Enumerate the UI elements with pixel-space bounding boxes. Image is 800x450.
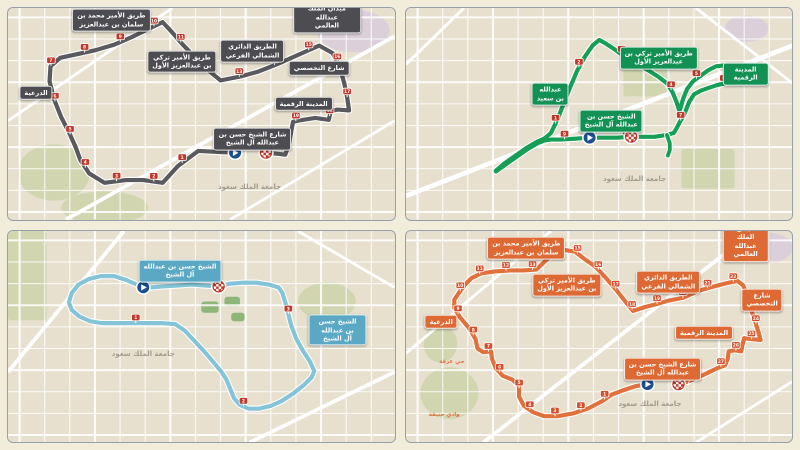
road-label-badge: طريق الأمير محمد بن سلمان بن عبدالعزيز <box>487 237 565 260</box>
road-label-badge: المدينة الرقمية <box>675 326 733 340</box>
route-map-panel-orange: 1234567891011121314151617181920212223242… <box>405 230 794 444</box>
svg-text:4: 4 <box>84 160 87 166</box>
park-area <box>8 231 47 320</box>
road-label-badge: شارع التخصصي <box>741 289 782 312</box>
svg-text:4: 4 <box>528 402 531 408</box>
svg-text:1: 1 <box>603 391 606 397</box>
svg-text:2: 2 <box>577 60 580 66</box>
map-canvas: 1234567891011121314151617181920212223242… <box>406 231 793 443</box>
svg-text:5: 5 <box>694 71 697 77</box>
district-label: حي عرقة <box>439 359 465 365</box>
district-label: وادي حنيفة <box>429 412 460 418</box>
road-label-badge: شارع الشيخ حسن بن عبدالله آل الشيخ <box>624 357 702 380</box>
svg-text:8: 8 <box>471 327 474 333</box>
svg-text:16: 16 <box>595 261 601 267</box>
road-label-badge: طريق الأمير تركي بن عبدالعزيز الأول <box>620 46 698 69</box>
road-label-badge: ميدان الملك عبدالله العالمي <box>722 230 768 262</box>
svg-text:2: 2 <box>579 402 582 408</box>
svg-text:9: 9 <box>456 306 459 312</box>
purple-area <box>724 16 767 42</box>
svg-text:9: 9 <box>562 131 565 137</box>
svg-text:27: 27 <box>717 358 723 364</box>
svg-text:3: 3 <box>553 408 556 414</box>
route-map-panel-dark: 12345678910111213141516171819طريق الأمير… <box>7 7 396 221</box>
route-map-panel-green: 123456789طريق الأمير تركي بن عبدالعزيز ا… <box>405 7 794 221</box>
svg-text:7: 7 <box>486 343 489 349</box>
road-label-badge: شارع الشيخ حسن بن عبدالله آل الشيخ <box>214 127 292 150</box>
road-label-badge: الشيخ حسن بن عبدالله آل الشيخ <box>580 109 643 132</box>
svg-text:10: 10 <box>151 18 157 24</box>
svg-text:12: 12 <box>502 262 508 268</box>
svg-text:7: 7 <box>49 58 52 64</box>
road-label-badge: المدينة الرقمية <box>722 62 768 85</box>
road-label-badge: عبدالله بن سعيد <box>532 83 569 106</box>
svg-text:19: 19 <box>293 113 299 119</box>
road-label-badge: شارع التخصصي <box>289 61 350 75</box>
park-area <box>420 367 478 419</box>
start-marker <box>582 131 596 144</box>
park-area <box>423 325 457 363</box>
svg-text:18: 18 <box>629 301 635 307</box>
svg-text:15: 15 <box>306 42 312 48</box>
svg-text:6: 6 <box>498 364 501 370</box>
field-area <box>231 312 245 320</box>
field-area <box>201 301 218 312</box>
svg-text:17: 17 <box>344 89 350 95</box>
road-label-badge: الدرعية <box>19 85 52 99</box>
svg-text:2: 2 <box>242 398 245 404</box>
map-place-label: جامعة الملك سعود <box>112 350 175 358</box>
route-maps-grid: 12345678910111213141516171819طريق الأمير… <box>0 0 800 450</box>
svg-text:5: 5 <box>517 380 520 386</box>
svg-text:6: 6 <box>53 93 56 99</box>
svg-text:11: 11 <box>178 35 184 41</box>
road-label-badge: ميدان الملك عبدالله العالمي <box>293 7 361 33</box>
svg-text:21: 21 <box>704 280 710 286</box>
map-place-label: جامعة الملك سعود <box>218 183 281 191</box>
svg-text:1: 1 <box>554 116 557 122</box>
route-map-panel-cyan: 123الشيخ حسن بن عبدالله آل الشيخالشيخ حس… <box>7 230 396 444</box>
map-place-label: جامعة الملك سعود <box>618 400 681 408</box>
svg-text:24: 24 <box>752 315 758 321</box>
road-label-badge: الطريق الدائري الشمالي الفرعي <box>221 40 285 63</box>
svg-text:1: 1 <box>134 315 137 321</box>
svg-text:15: 15 <box>574 245 580 251</box>
svg-text:26: 26 <box>732 342 738 348</box>
road-label-badge: المدينة الرقمية <box>275 97 333 111</box>
svg-text:25: 25 <box>748 331 754 337</box>
road-label-badge: الشيخ حسن بن عبدالله آل الشيخ <box>139 259 222 282</box>
svg-text:13: 13 <box>236 69 242 75</box>
svg-text:8: 8 <box>83 45 86 51</box>
svg-text:11: 11 <box>476 266 482 272</box>
svg-text:2: 2 <box>152 174 155 180</box>
svg-text:22: 22 <box>730 273 736 279</box>
svg-text:4: 4 <box>669 82 672 88</box>
svg-text:9: 9 <box>119 34 122 40</box>
road-label-badge: طريق الأمير محمد بن سلمان بن عبدالعزيز <box>72 9 150 32</box>
svg-text:3: 3 <box>287 306 290 312</box>
road-label-badge: الدرعية <box>425 314 458 328</box>
road-label-badge: الشيخ حسن بن عبدالله آل الشيخ <box>309 314 366 345</box>
road-label-badge: الطريق الدائري الشمالي الفرعي <box>636 271 700 294</box>
road-label-badge: طريق الأمير تركي بن عبدالعزيز الأول <box>532 274 601 297</box>
map-place-label: جامعة الملك سعود <box>603 175 666 183</box>
svg-text:13: 13 <box>529 261 535 267</box>
svg-text:16: 16 <box>334 54 340 60</box>
svg-text:3: 3 <box>115 173 118 179</box>
svg-text:5: 5 <box>68 127 71 133</box>
svg-text:19: 19 <box>653 295 659 301</box>
svg-text:1: 1 <box>181 155 184 161</box>
map-canvas: 12345678910111213141516171819 <box>8 8 395 220</box>
svg-text:7: 7 <box>679 113 682 119</box>
svg-text:10: 10 <box>457 283 463 289</box>
road-label-badge: طريق الأمير تركي بن عبدالعزيز الأول <box>147 50 216 73</box>
svg-text:17: 17 <box>612 281 618 287</box>
